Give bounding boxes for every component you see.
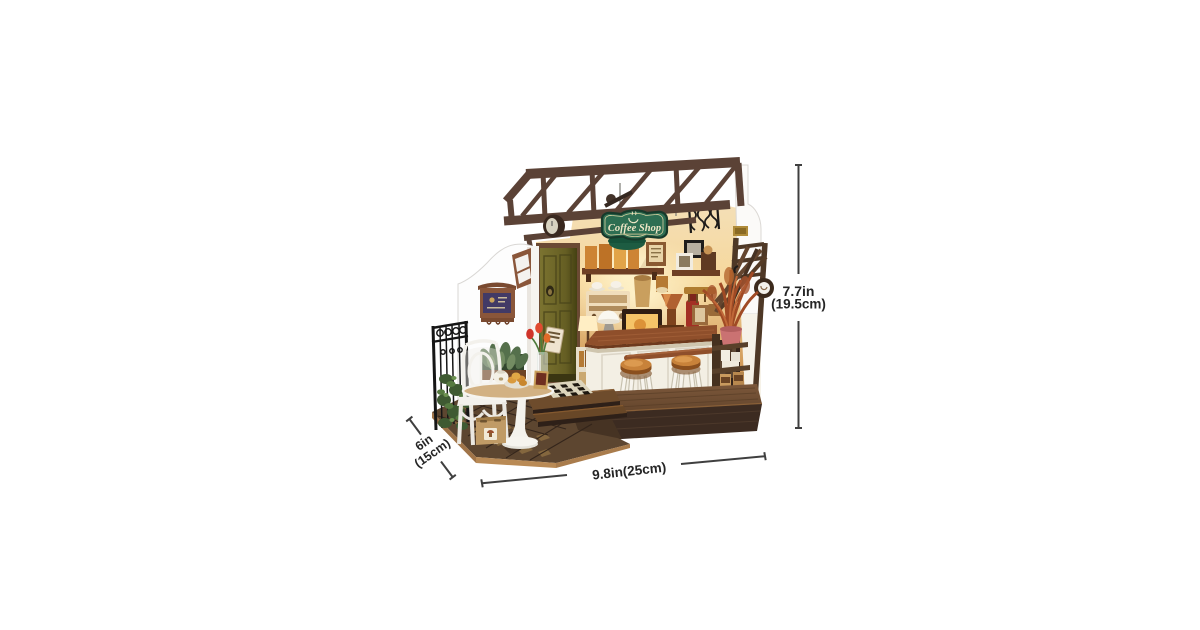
svg-text:(19.5cm): (19.5cm): [771, 297, 826, 312]
svg-text:9.8in(25cm): 9.8in(25cm): [591, 460, 666, 483]
svg-text:Coffee Shop: Coffee Shop: [608, 223, 661, 234]
